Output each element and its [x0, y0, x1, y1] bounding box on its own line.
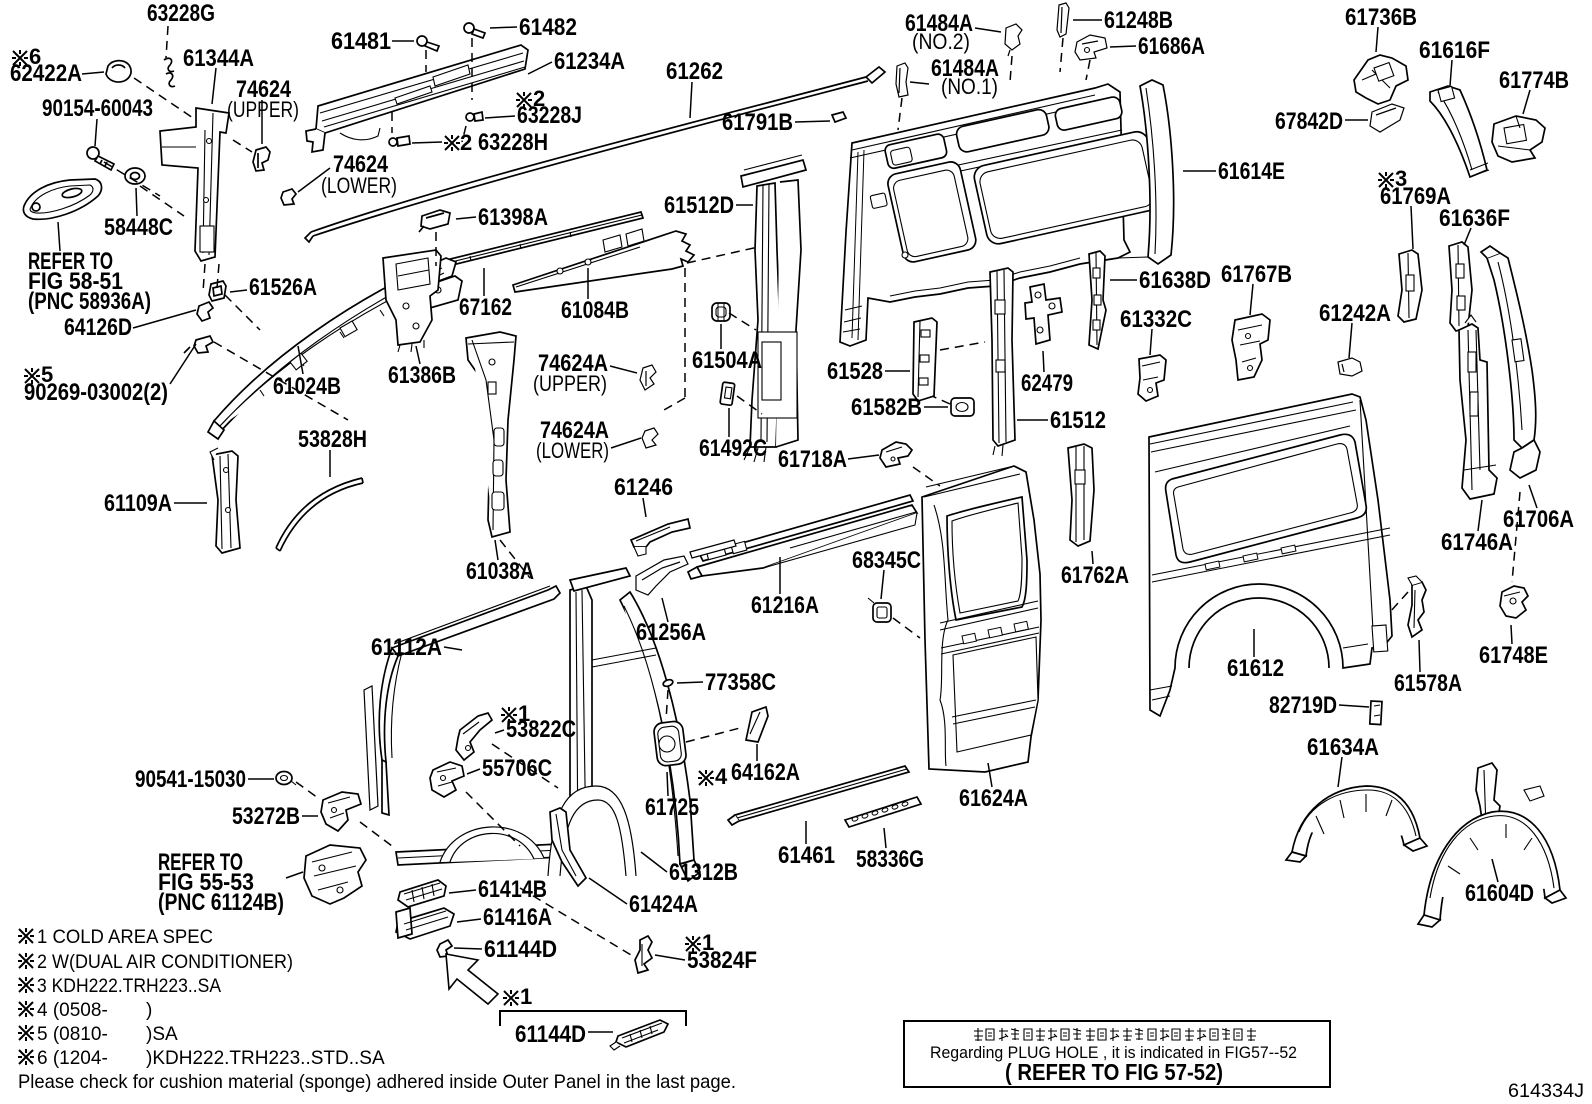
svg-text:61736B: 61736B [1345, 4, 1417, 31]
svg-text:(PNC 58936A): (PNC 58936A) [28, 288, 151, 315]
svg-text:( REFER TO FIG 57-52): ( REFER TO FIG 57-52) [1005, 1059, 1223, 1085]
svg-text:5: 5 [41, 362, 53, 387]
svg-text:2 W(DUAL AIR CONDITIONER): 2 W(DUAL AIR CONDITIONER) [37, 952, 293, 973]
svg-text:2: 2 [460, 130, 472, 155]
svg-text:61706A: 61706A [1503, 506, 1574, 533]
svg-text:1: 1 [518, 701, 530, 726]
svg-text:61604D: 61604D [1465, 880, 1534, 907]
svg-text:61616F: 61616F [1419, 37, 1490, 64]
svg-text:61718A: 61718A [778, 446, 847, 473]
svg-text:(LOWER): (LOWER) [321, 173, 397, 198]
svg-text:1: 1 [702, 930, 714, 955]
svg-text:(LOWER): (LOWER) [536, 438, 609, 463]
svg-text:(PNC 61124B): (PNC 61124B) [158, 889, 284, 916]
svg-text:90541-15030: 90541-15030 [135, 766, 246, 793]
svg-text:63228H: 63228H [478, 129, 548, 156]
svg-text:61504A: 61504A [692, 347, 762, 374]
svg-text:68345C: 68345C [852, 547, 921, 574]
svg-text:77358C: 77358C [705, 669, 776, 696]
svg-text:61424A: 61424A [629, 891, 698, 918]
svg-text:1: 1 [520, 984, 532, 1009]
svg-text:61246: 61246 [614, 474, 673, 501]
svg-text:61526A: 61526A [249, 274, 317, 301]
svg-text:61481: 61481 [331, 28, 391, 55]
svg-text:(UPPER): (UPPER) [533, 371, 607, 396]
svg-text:6 (1204-: 6 (1204- [37, 1048, 108, 1069]
svg-text:61634A: 61634A [1307, 734, 1379, 761]
svg-text:53828H: 53828H [298, 426, 367, 453]
svg-text:61024B: 61024B [273, 373, 341, 400]
svg-text:58336G: 58336G [856, 846, 924, 873]
svg-text:53822C: 53822C [506, 716, 576, 743]
svg-text:61461: 61461 [778, 842, 835, 869]
svg-text:53824F: 53824F [687, 947, 757, 974]
svg-text:63228G: 63228G [147, 0, 215, 27]
svg-text:61234A: 61234A [554, 48, 625, 75]
svg-text:64126D: 64126D [64, 314, 132, 341]
svg-text:Please check for cushion mater: Please check for cushion material (spong… [18, 1071, 736, 1093]
svg-text:61112A: 61112A [371, 634, 442, 661]
svg-text:61248B: 61248B [1104, 7, 1173, 34]
svg-text:61482: 61482 [519, 14, 577, 41]
svg-text:): ) [146, 1000, 152, 1021]
svg-text:67162: 67162 [459, 294, 512, 321]
svg-text:64162A: 64162A [731, 759, 800, 786]
svg-text:61332C: 61332C [1120, 306, 1192, 333]
svg-text:90154-60043: 90154-60043 [42, 95, 153, 122]
svg-text:67842D: 67842D [1275, 108, 1343, 135]
svg-text:614334J: 614334J [1508, 1081, 1584, 1099]
svg-text:2: 2 [533, 86, 545, 111]
svg-text:(UPPER): (UPPER) [227, 97, 299, 122]
svg-text:4 (0508-: 4 (0508- [37, 1000, 108, 1021]
svg-text:61528: 61528 [827, 358, 883, 385]
svg-text:1 COLD AREA SPEC: 1 COLD AREA SPEC [37, 927, 213, 948]
svg-text:)SA: )SA [146, 1024, 178, 1045]
svg-text:61262: 61262 [666, 58, 723, 85]
svg-text:3: 3 [1395, 166, 1407, 191]
svg-text:61256A: 61256A [636, 619, 706, 646]
svg-text:61624A: 61624A [959, 785, 1028, 812]
svg-text:61038A: 61038A [466, 558, 534, 585]
svg-text:63228J: 63228J [517, 102, 582, 129]
svg-text:3 KDH222.TRH223..SA: 3 KDH222.TRH223..SA [37, 976, 221, 997]
svg-text:)KDH222.TRH223..STD..SA: )KDH222.TRH223..STD..SA [146, 1048, 385, 1069]
svg-text:61084B: 61084B [561, 297, 629, 324]
svg-text:61416A: 61416A [483, 904, 552, 931]
svg-text:61344A: 61344A [183, 45, 254, 72]
svg-text:61767B: 61767B [1221, 261, 1292, 288]
svg-text:(NO.2): (NO.2) [912, 29, 970, 54]
svg-text:61398A: 61398A [478, 204, 548, 231]
svg-text:61774B: 61774B [1499, 67, 1569, 94]
svg-text:61512D: 61512D [664, 192, 734, 219]
svg-text:(NO.1): (NO.1) [941, 74, 998, 99]
svg-text:61636F: 61636F [1439, 205, 1510, 232]
svg-text:61762A: 61762A [1061, 562, 1129, 589]
svg-text:61109A: 61109A [104, 490, 172, 517]
svg-text:61216A: 61216A [751, 592, 819, 619]
svg-text:5 (0810-: 5 (0810- [37, 1024, 108, 1045]
svg-text:4: 4 [715, 764, 728, 789]
svg-text:53272B: 53272B [232, 803, 300, 830]
svg-text:61612: 61612 [1227, 655, 1284, 682]
svg-text:61582B: 61582B [851, 394, 922, 421]
svg-text:61512: 61512 [1050, 407, 1106, 434]
svg-text:61578A: 61578A [1394, 670, 1462, 697]
svg-text:61492C: 61492C [699, 435, 767, 462]
svg-text:61686A: 61686A [1138, 33, 1205, 60]
svg-text:55706C: 55706C [482, 755, 552, 782]
svg-text:61748E: 61748E [1479, 642, 1548, 669]
svg-text:61725: 61725 [645, 794, 699, 821]
svg-text:61144D: 61144D [484, 936, 557, 963]
svg-text:58448C: 58448C [104, 214, 173, 241]
svg-text:61312B: 61312B [669, 859, 738, 886]
svg-text:6: 6 [29, 44, 41, 69]
svg-text:61746A: 61746A [1441, 529, 1513, 556]
svg-text:61414B: 61414B [478, 876, 547, 903]
svg-text:82719D: 82719D [1269, 692, 1337, 719]
svg-text:61791B: 61791B [722, 109, 793, 136]
svg-text:62479: 62479 [1021, 370, 1073, 397]
svg-text:61144D: 61144D [515, 1021, 586, 1048]
svg-text:61638D: 61638D [1139, 267, 1211, 294]
svg-text:61386B: 61386B [388, 362, 456, 389]
svg-text:61242A: 61242A [1319, 300, 1391, 327]
svg-text:61614E: 61614E [1218, 158, 1285, 185]
